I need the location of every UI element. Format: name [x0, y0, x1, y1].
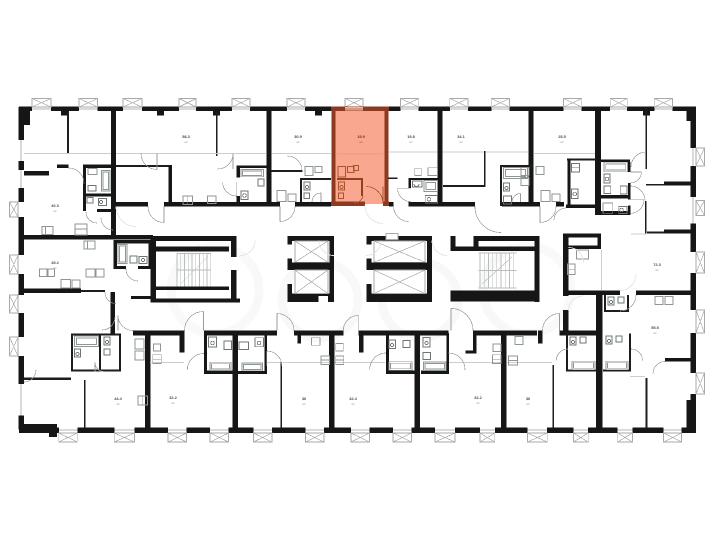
svg-text:м²: м²	[54, 209, 57, 213]
svg-text:32.2: 32.2	[169, 395, 177, 400]
svg-text:58.3: 58.3	[182, 134, 190, 139]
svg-text:19.8: 19.8	[407, 134, 415, 139]
svg-text:м²: м²	[185, 140, 188, 144]
svg-text:32.4: 32.4	[349, 396, 357, 401]
svg-text:м²: м²	[561, 140, 564, 144]
svg-text:м²: м²	[352, 402, 355, 406]
svg-text:32.2: 32.2	[474, 395, 482, 400]
svg-text:55.5: 55.5	[651, 325, 659, 330]
svg-text:40.3: 40.3	[51, 203, 59, 208]
svg-text:34.1: 34.1	[457, 134, 465, 139]
svg-text:м²: м²	[297, 140, 300, 144]
svg-text:м²: м²	[527, 402, 530, 406]
svg-text:м²: м²	[172, 401, 175, 405]
svg-text:19.9: 19.9	[357, 134, 365, 139]
svg-text:45.2: 45.2	[51, 260, 59, 265]
svg-text:м²: м²	[477, 401, 480, 405]
svg-text:30.9: 30.9	[294, 134, 302, 139]
svg-text:м²: м²	[654, 331, 657, 335]
svg-text:м²: м²	[656, 268, 659, 272]
svg-text:72.3: 72.3	[653, 262, 661, 267]
svg-text:м²: м²	[117, 402, 120, 406]
svg-text:м²: м²	[360, 140, 363, 144]
svg-text:25.5: 25.5	[558, 134, 566, 139]
svg-text:м²: м²	[303, 402, 306, 406]
svg-text:44.4: 44.4	[114, 396, 122, 401]
svg-text:м²: м²	[54, 266, 57, 270]
svg-text:м²: м²	[460, 140, 463, 144]
svg-text:м²: м²	[410, 140, 413, 144]
